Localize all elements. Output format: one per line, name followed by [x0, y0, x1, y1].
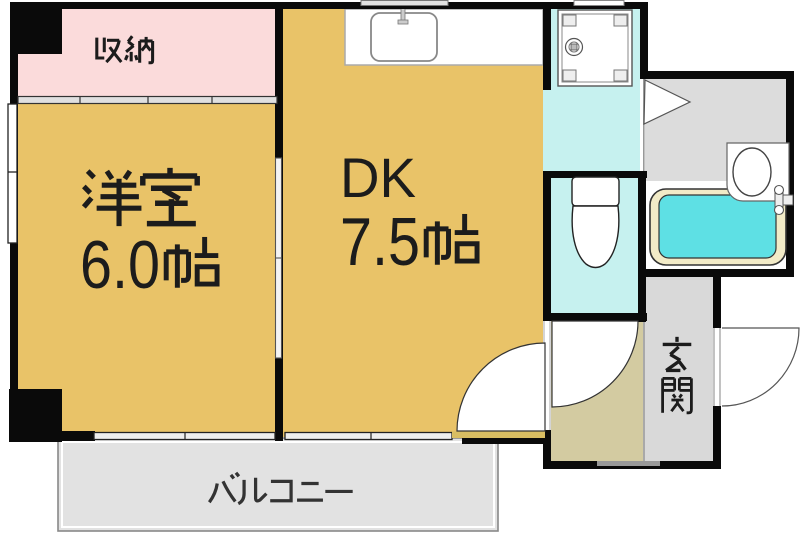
svg-text:6.0: 6.0 [80, 227, 160, 303]
svg-text:DK: DK [340, 146, 416, 209]
svg-text:7.5: 7.5 [340, 204, 420, 280]
